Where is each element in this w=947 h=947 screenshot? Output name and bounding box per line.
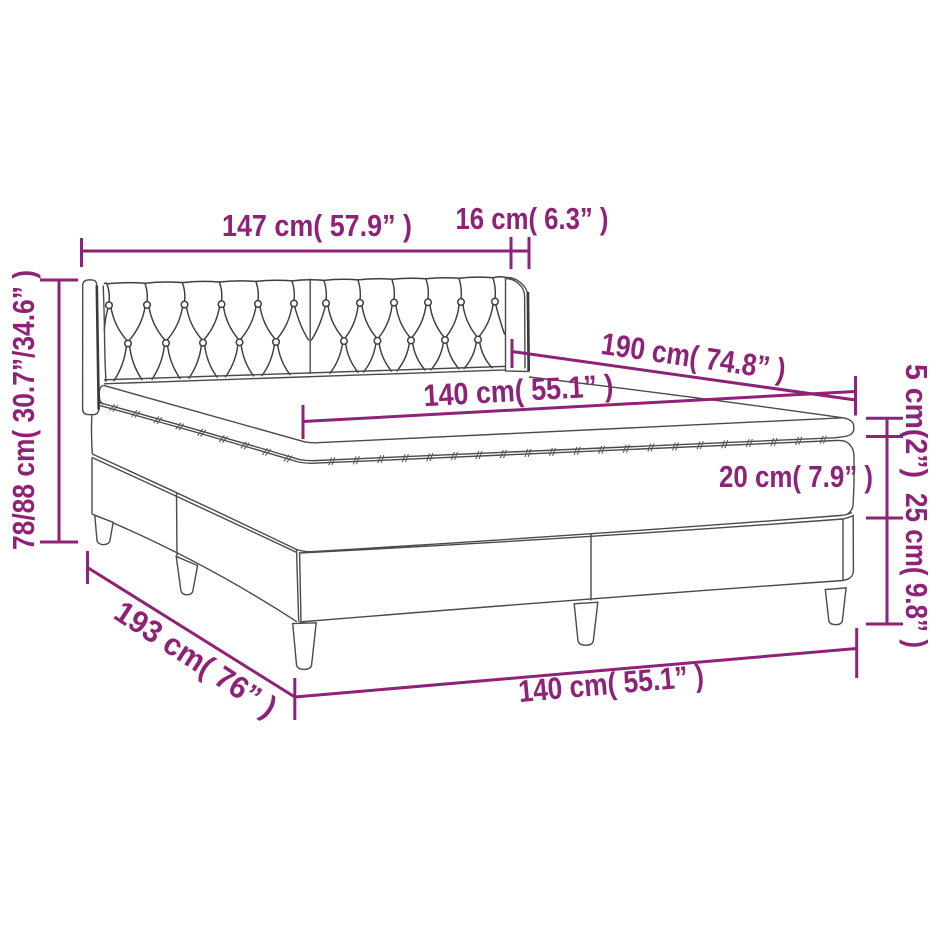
svg-text:5 cm(2”): 5 cm(2”)	[899, 364, 934, 478]
svg-text:20 cm( 7.9” ): 20 cm( 7.9” )	[719, 459, 873, 494]
svg-text:78/88 cm( 30.7”/34.6” ): 78/88 cm( 30.7”/34.6” )	[6, 270, 41, 550]
svg-text:16 cm( 6.3” ): 16 cm( 6.3” )	[456, 201, 609, 236]
svg-text:25 cm( 9.8” ): 25 cm( 9.8” )	[899, 493, 934, 648]
svg-text:147 cm( 57.9” ): 147 cm( 57.9” )	[222, 208, 412, 243]
